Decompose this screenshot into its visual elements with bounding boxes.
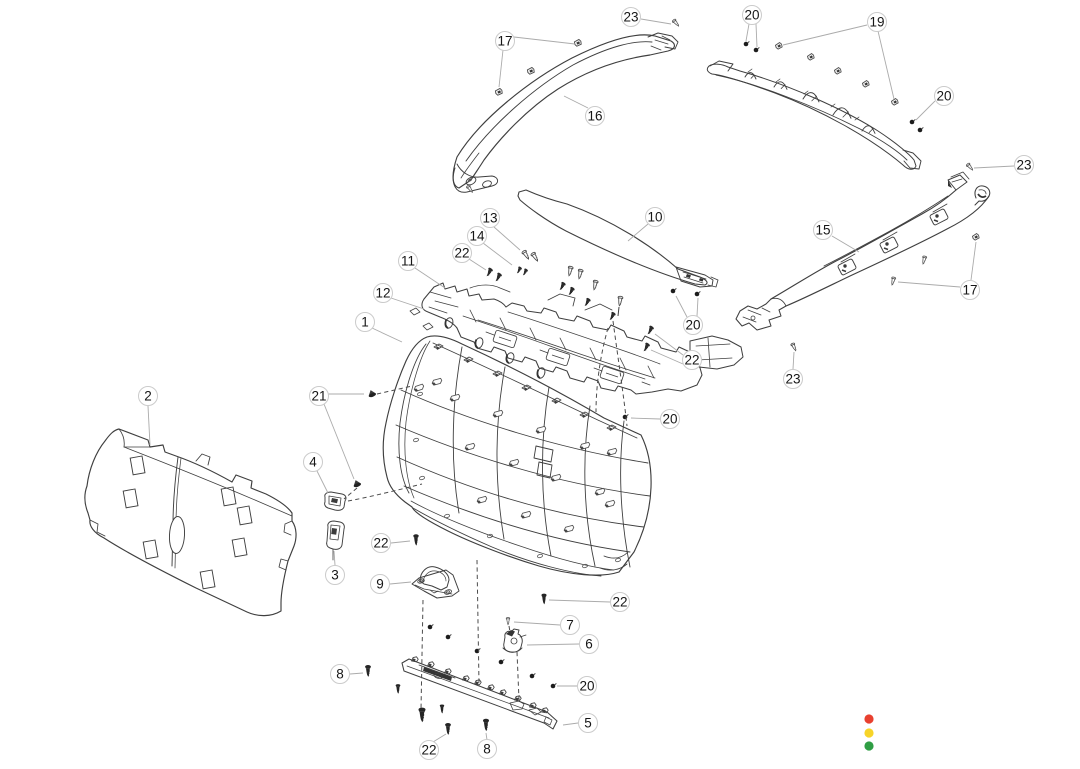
svg-text:9: 9 <box>376 577 384 592</box>
svg-text:20: 20 <box>579 679 594 694</box>
svg-text:1: 1 <box>361 315 369 330</box>
svg-text:16: 16 <box>587 109 602 124</box>
svg-text:2: 2 <box>144 389 152 404</box>
svg-text:14: 14 <box>469 229 485 244</box>
svg-text:4: 4 <box>309 455 317 470</box>
svg-text:7: 7 <box>566 618 574 633</box>
svg-text:23: 23 <box>785 372 800 387</box>
svg-text:20: 20 <box>936 89 951 104</box>
svg-text:20: 20 <box>685 318 700 333</box>
svg-text:10: 10 <box>647 210 662 225</box>
svg-text:3: 3 <box>331 568 339 583</box>
svg-text:22: 22 <box>421 743 436 758</box>
svg-text:22: 22 <box>373 536 388 551</box>
svg-text:20: 20 <box>662 412 677 427</box>
svg-text:6: 6 <box>585 637 593 652</box>
svg-text:15: 15 <box>815 223 830 238</box>
svg-text:8: 8 <box>336 667 344 682</box>
svg-text:17: 17 <box>962 283 977 298</box>
svg-text:23: 23 <box>1016 158 1031 173</box>
svg-text:20: 20 <box>744 8 759 23</box>
svg-text:23: 23 <box>623 10 638 25</box>
svg-text:12: 12 <box>375 286 390 301</box>
svg-text:13: 13 <box>482 211 497 226</box>
svg-text:22: 22 <box>454 246 469 261</box>
svg-text:19: 19 <box>869 15 884 30</box>
svg-text:11: 11 <box>401 254 415 269</box>
svg-text:17: 17 <box>497 34 512 49</box>
svg-text:21: 21 <box>311 389 326 404</box>
svg-text:8: 8 <box>483 742 491 757</box>
svg-text:22: 22 <box>612 595 627 610</box>
svg-text:5: 5 <box>584 716 592 731</box>
svg-text:22: 22 <box>684 353 699 368</box>
